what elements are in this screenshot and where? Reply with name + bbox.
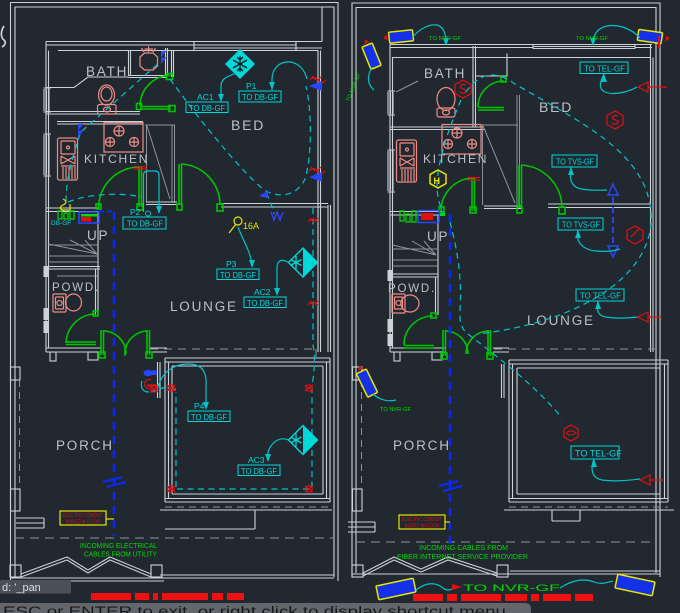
svg-text:P4: P4	[194, 401, 205, 411]
svg-text:TO TEL-GF: TO TEL-GF	[575, 449, 622, 459]
svg-text:H: H	[434, 176, 441, 186]
svg-text:AC2: AC2	[254, 287, 271, 297]
svg-text:ELEC PVC CONDUIT: ELEC PVC CONDUIT	[63, 513, 103, 519]
svg-text:16A: 16A	[243, 221, 259, 231]
svg-text:PORCH: PORCH	[56, 438, 114, 453]
svg-text:TO TVS-GF: TO TVS-GF	[562, 220, 600, 230]
svg-text:ELEC PVC CONDUIT: ELEC PVC CONDUIT	[402, 517, 442, 523]
svg-text:LOUNGE: LOUNGE	[170, 299, 238, 314]
svg-text:INCOMING ELECTRICAL: INCOMING ELECTRICAL	[80, 543, 157, 550]
svg-text:TO DB-GF: TO DB-GF	[241, 466, 277, 476]
svg-text:TO TEL-GF: TO TEL-GF	[584, 64, 625, 74]
svg-text:BATH: BATH	[86, 64, 128, 79]
svg-text:BURIED IN FLOOR: BURIED IN FLOOR	[405, 524, 439, 530]
svg-text:TO DB-GF: TO DB-GF	[220, 270, 256, 280]
svg-text:TO NVR-GF: TO NVR-GF	[380, 407, 412, 413]
svg-text:BATH: BATH	[424, 66, 466, 81]
svg-text:AC1: AC1	[197, 92, 214, 102]
svg-text:AC3: AC3	[248, 455, 265, 465]
svg-text:POWD.: POWD.	[52, 282, 100, 294]
svg-text:TO DB-GF: TO DB-GF	[189, 103, 225, 113]
svg-text:LOUNGE: LOUNGE	[527, 313, 595, 328]
svg-text:BED: BED	[231, 117, 265, 133]
svg-text:TO NVR-GF: TO NVR-GF	[463, 583, 560, 594]
svg-text:ESC or ENTER to exit, or right: ESC or ENTER to exit, or right click to …	[3, 604, 506, 613]
svg-text:INCOMING CABLES FROM: INCOMING CABLES FROM	[419, 545, 508, 552]
svg-text:TO DB-GF: TO DB-GF	[242, 92, 278, 102]
svg-text:TO TEL-GF: TO TEL-GF	[580, 291, 621, 301]
svg-text:P3: P3	[226, 259, 237, 269]
svg-text:TO NVR-GF: TO NVR-GF	[576, 36, 609, 42]
svg-text:P1: P1	[246, 81, 257, 91]
svg-text:TO DB-GF: TO DB-GF	[191, 412, 227, 422]
svg-text:TO TVS-GF: TO TVS-GF	[556, 157, 594, 167]
svg-text:CABLES FROM UTILITY: CABLES FROM UTILITY	[84, 552, 157, 559]
svg-text:P2: P2	[130, 207, 141, 217]
svg-text:TO NVR-GF: TO NVR-GF	[429, 36, 462, 42]
svg-text:TO DB-GF: TO DB-GF	[127, 219, 163, 229]
svg-text:POWD.: POWD.	[388, 283, 436, 295]
svg-text:UP: UP	[87, 228, 109, 243]
svg-text:DB-GF: DB-GF	[51, 220, 71, 227]
svg-text:UP: UP	[427, 229, 449, 244]
svg-text:KITCHEN: KITCHEN	[84, 152, 149, 166]
svg-text:d: '_pan: d: '_pan	[2, 582, 41, 594]
svg-text:BURIED IN FLOOR: BURIED IN FLOOR	[66, 520, 100, 526]
svg-text:PORCH: PORCH	[393, 438, 451, 453]
svg-text:FIBER INTERNET SERVICE PROVIDE: FIBER INTERNET SERVICE PROVIDER	[397, 554, 528, 561]
svg-text:TO DB-GF: TO DB-GF	[247, 298, 283, 308]
svg-text:BED: BED	[539, 99, 573, 115]
